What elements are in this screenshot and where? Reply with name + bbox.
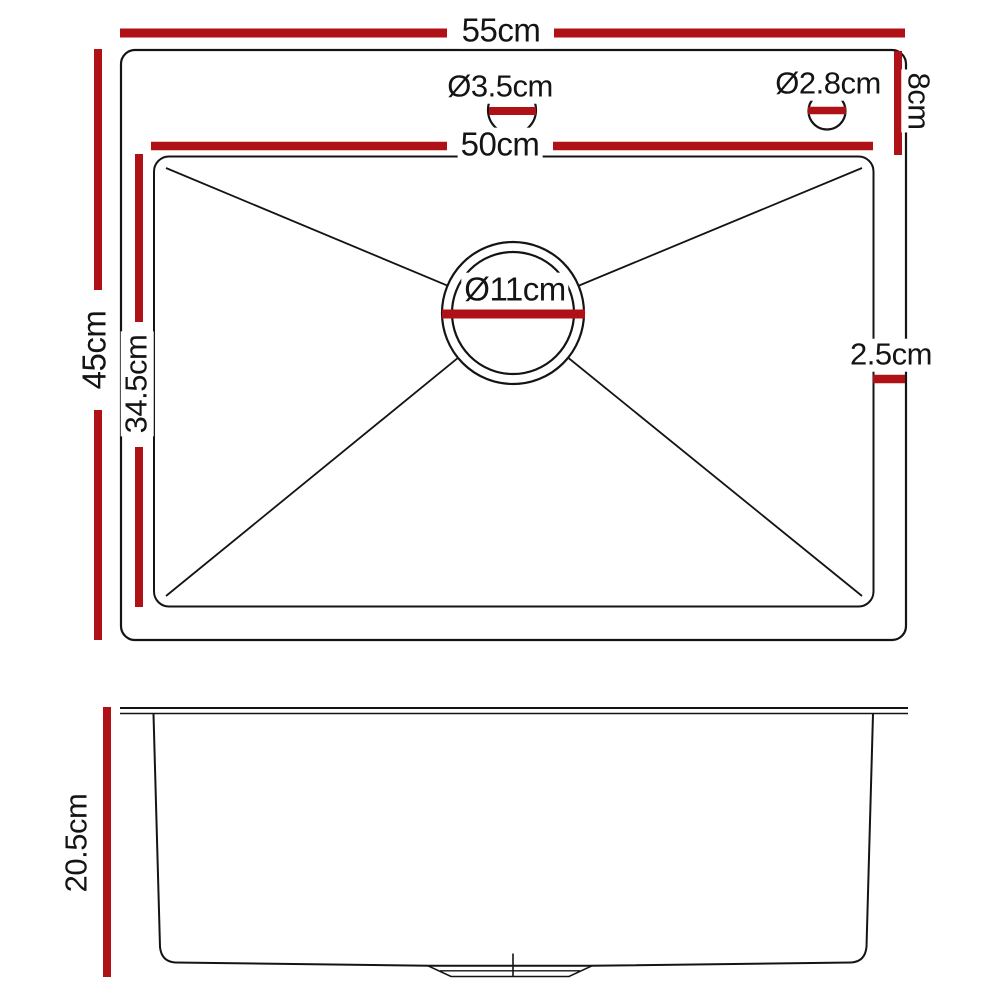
sink-dimension-diagram: 55cm Ø3.5cm Ø2.8cm 8cm 50cm 45cm 34.5cm … [0, 0, 999, 1000]
dimension-lines [98, 33, 905, 977]
dim-55cm-label: 55cm [459, 14, 544, 49]
side-view [120, 708, 908, 977]
dim-34-5cm-label: 34.5cm [121, 332, 154, 437]
dim-20-5cm-label: 20.5cm [61, 791, 94, 896]
dim-50cm-label: 50cm [458, 128, 543, 163]
dim-45cm-label: 45cm [78, 308, 113, 393]
drain-diameter-label: Ø11cm [461, 273, 568, 308]
tap-hole-left-label: Ø3.5cm [444, 71, 556, 104]
side-right-wall [852, 714, 874, 963]
dim-8cm-label: 8cm [902, 69, 935, 132]
dim-2-5cm-label: 2.5cm [847, 339, 935, 372]
tap-hole-right-label: Ø2.8cm [772, 68, 884, 101]
side-left-wall [154, 714, 176, 963]
